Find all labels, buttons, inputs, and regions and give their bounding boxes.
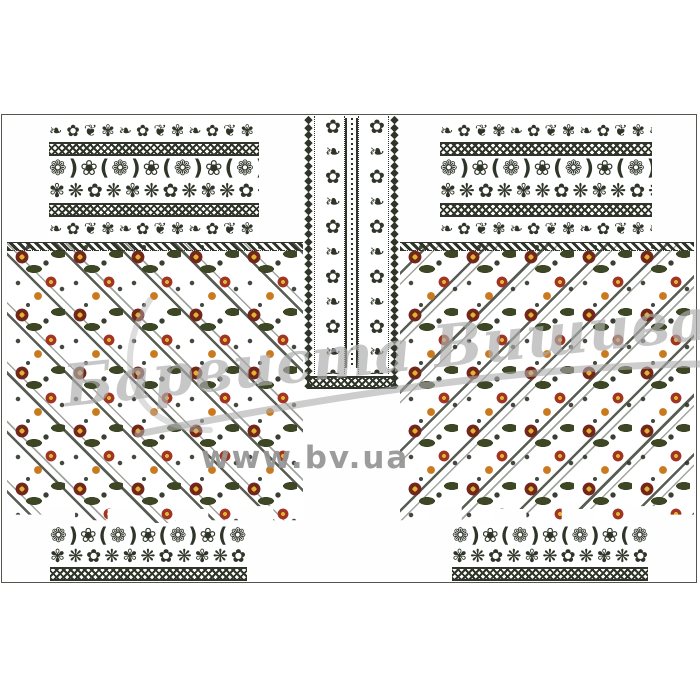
placket-opening-lines bbox=[345, 118, 358, 368]
body-panel-right bbox=[400, 242, 694, 523]
diagonal-floral-pattern bbox=[7, 242, 303, 523]
diagonal-floral-pattern bbox=[400, 242, 694, 523]
main-row-ornament: ✾❋✿❋✾❋✿❋✾❋✿❋✾❋✿❋✾❋✿❋ bbox=[49, 180, 259, 203]
panel-top-border bbox=[400, 242, 694, 251]
vine-row-ornament: ❧✿❦✾❧✿❦✾❧✿❦✾❧✿❦✾❧✿❦✾ bbox=[49, 217, 259, 240]
main-row-ornament: ✾❋✿❋✾❋✿❋✾❋✿❋✾❋✿❋✾❋✿❋ bbox=[440, 180, 652, 203]
lace-row-ornament bbox=[49, 203, 259, 217]
vine-row-ornament: ❧✿❦✾❧✿❦✾❧✿❦✾❧✿❦✾❧✿❦✾ bbox=[49, 119, 259, 142]
main-row-ornament: ✾❋✿❋✾❋✿❋✾❋✿❋✾❋✿❋✾❋✿❋ bbox=[50, 546, 247, 567]
pattern-sheet: ❧✿❦✾❧✿❦✾❧✿❦✾❧✿❦✾❧✿❦✾ ❁)❀(❁)❀(❁)❀(❁)❀(❁)❀… bbox=[0, 0, 700, 700]
collar-placket-band: ◆◆◆◆◆◆◆◆◆◆◆◆◆◆◆◆◆◆◆◆◆◆◆◆◆◆◆◆◆◆◆◆◆◆◆◆ ✿❧✿… bbox=[303, 116, 400, 389]
collar-lace-edge-left: ◆◆◆◆◆◆◆◆◆◆◆◆◆◆◆◆◆◆◆◆◆◆◆◆◆◆◆◆◆◆◆◆◆◆◆◆ bbox=[303, 116, 314, 389]
body-panel-left bbox=[7, 242, 303, 523]
vine-row-ornament: ❧✿❦✾❧✿❦✾❧✿❦✾❧✿❦✾❧✿❦✾ bbox=[440, 217, 652, 240]
collar-floral-column-left: ✿❧✿❧✿❧✿❧✿❧✿❧✿❧ bbox=[314, 116, 345, 374]
collar-floral-column-right: ✿❧✿❧✿❧✿❧✿❧✿❧✿❧ bbox=[358, 116, 389, 374]
sleeve-band-right: ❧✿❦✾❧✿❦✾❧✿❦✾❧✿❦✾❧✿❦✾ ❁)❀(❁)❀(❁)❀(❁)❀(❁)❀… bbox=[440, 119, 652, 240]
main-row-ornament: ❁)❀(❁)❀(❁)❀(❁)❀(❁)❀( bbox=[452, 524, 648, 546]
lace-row-ornament bbox=[440, 142, 652, 156]
panel-top-border bbox=[7, 242, 303, 251]
lace-row-ornament bbox=[440, 203, 652, 217]
vine-row-ornament: ❧✿❦✾❧✿❦✾❧✿❦✾❧✿❦✾❧✿❦✾ bbox=[440, 119, 652, 142]
main-row-ornament: ❁)❀(❁)❀(❁)❀(❁)❀(❁)❀( bbox=[440, 156, 652, 180]
main-row-ornament: ❁)❀(❁)❀(❁)❀(❁)❀(❁)❀( bbox=[49, 156, 259, 180]
cuff-band-left: ❁)❀(❁)❀(❁)❀(❁)❀(❁)❀( ✾❋✿❋✾❋✿❋✾❋✿❋✾❋✿❋✾❋✿… bbox=[50, 524, 247, 581]
sleeve-band-left: ❧✿❦✾❧✿❦✾❧✿❦✾❧✿❦✾❧✿❦✾ ❁)❀(❁)❀(❁)❀(❁)❀(❁)❀… bbox=[49, 119, 259, 240]
cuff-band-right: ❁)❀(❁)❀(❁)❀(❁)❀(❁)❀( ✾❋✿❋✾❋✿❋✾❋✿❋✾❋✿❋✾❋✿… bbox=[452, 524, 648, 581]
main-row-ornament: ✾❋✿❋✾❋✿❋✾❋✿❋✾❋✿❋✾❋✿❋ bbox=[452, 546, 648, 567]
collar-bottom-lace bbox=[307, 376, 396, 389]
lace-row-ornament bbox=[452, 567, 648, 581]
lace-row-ornament bbox=[50, 567, 247, 581]
lace-row-ornament bbox=[49, 142, 259, 156]
collar-lace-edge-right: ◆◆◆◆◆◆◆◆◆◆◆◆◆◆◆◆◆◆◆◆◆◆◆◆◆◆◆◆◆◆◆◆◆◆◆◆ bbox=[389, 116, 400, 389]
main-row-ornament: ❁)❀(❁)❀(❁)❀(❁)❀(❁)❀( bbox=[50, 524, 247, 546]
